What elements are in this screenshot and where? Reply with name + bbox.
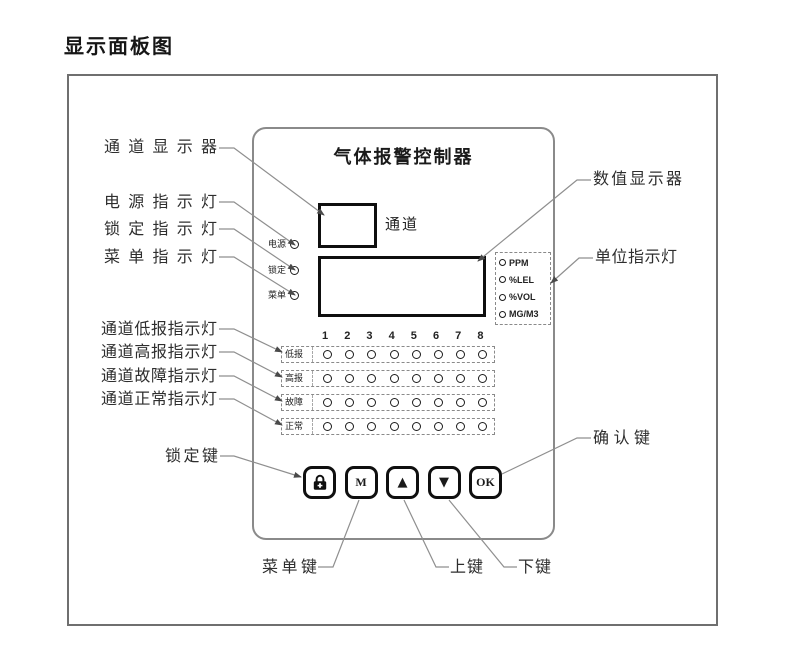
value-display-screen [318,256,486,317]
power-led-row: 电源 [266,239,299,250]
up-key: ▲ [386,466,419,499]
callout-low-alarm-led: 通道低报指示灯 [101,321,217,339]
menu-led-label: 菜单 [266,290,286,301]
channel-led-icon [390,398,399,407]
low-alarm-leds [313,350,487,359]
page-title: 显示面板图 [64,30,174,59]
channel-led-matrix: 低报 高报 故障 正常 [281,346,495,435]
channel-led-icon [323,398,332,407]
channel-number: 5 [403,330,425,342]
power-led-icon [290,240,299,249]
unit-led-label: %VOL [509,292,536,302]
channel-led-icon [412,398,421,407]
fault-leds [313,398,487,407]
channel-display-screen [318,203,377,248]
channel-led-icon [367,422,376,431]
unit-led-row: MG/M3 [499,309,550,319]
high-alarm-leds [313,374,487,383]
callout-menu-led: 菜单指示灯 [104,249,217,267]
channel-led-icon [456,422,465,431]
lock-led-icon [290,266,299,275]
channel-led-icon [367,374,376,383]
callout-value-display: 数值显示器 [593,171,682,189]
channel-led-icon [456,374,465,383]
channel-led-icon [390,350,399,359]
channel-led-icon [478,350,487,359]
channel-led-icon [478,422,487,431]
down-arrow-icon: ▼ [439,475,449,490]
callout-unit-led: 单位指示灯 [595,249,677,267]
fault-row-label: 故障 [282,395,313,410]
callout-fault-led: 通道故障指示灯 [101,368,217,386]
high-alarm-led-row: 高报 [281,370,495,387]
channel-led-icon [478,374,487,383]
channel-led-icon [345,422,354,431]
unit-led-row: %VOL [499,292,550,302]
normal-led-row: 正常 [281,418,495,435]
channel-number: 3 [358,330,380,342]
low-alarm-led-row: 低报 [281,346,495,363]
callout-normal-led: 通道正常指示灯 [101,391,217,409]
channel-number: 8 [469,330,491,342]
callout-ok-key: 确认键 [593,430,650,448]
callout-menu-key: 菜单键 [262,559,317,577]
channel-led-icon [367,350,376,359]
channel-led-icon [434,374,443,383]
low-alarm-row-label: 低报 [282,347,313,362]
unit-led-label: %LEL [509,275,534,285]
channel-display-caption: 通道 [385,213,419,234]
unit-led-label: MG/M3 [509,309,539,319]
power-led-label: 电源 [266,239,286,250]
channel-led-icon [412,422,421,431]
channel-number: 7 [447,330,469,342]
status-led-group: 电源 锁定 菜单 [266,239,299,301]
channel-led-icon [412,350,421,359]
channel-led-icon [412,374,421,383]
channel-number: 6 [425,330,447,342]
callout-down-key: 下键 [518,559,551,577]
normal-row-label: 正常 [282,419,313,434]
key-row: M ▲ ▼ OK [303,466,502,499]
channel-led-icon [345,350,354,359]
controller-panel: 气体报警控制器 通道 电源 锁定 菜单 PPM [252,127,555,540]
channel-led-icon [323,422,332,431]
high-alarm-row-label: 高报 [282,371,313,386]
lock-key [303,466,336,499]
channel-led-icon [434,350,443,359]
unit-led-icon [499,259,506,266]
unit-led-icon [499,294,506,301]
menu-led-icon [290,291,299,300]
unit-led-row: PPM [499,258,550,268]
unit-led-icon [499,276,506,283]
ok-key: OK [469,466,502,499]
channel-led-icon [478,398,487,407]
figure-page: 显示面板图 气体报警控制器 通道 电源 锁定 菜单 [0,0,807,656]
channel-led-icon [390,374,399,383]
channel-led-icon [434,422,443,431]
lock-led-label: 锁定 [266,265,286,276]
channel-number: 2 [336,330,358,342]
callout-power-led: 电源指示灯 [104,194,217,212]
menu-led-row: 菜单 [266,290,299,301]
channel-led-icon [456,398,465,407]
channel-led-icon [434,398,443,407]
up-arrow-icon: ▲ [398,475,408,490]
unit-led-row: %LEL [499,275,550,285]
down-key: ▼ [428,466,461,499]
fault-led-row: 故障 [281,394,495,411]
channel-led-icon [323,350,332,359]
channel-number-row: 12345678 [314,330,492,342]
channel-number: 1 [314,330,336,342]
unit-led-group: PPM %LEL %VOL MG/M3 [495,252,551,325]
channel-led-icon [456,350,465,359]
normal-leds [313,422,487,431]
callout-lock-key: 锁定键 [165,448,218,466]
lock-led-row: 锁定 [266,265,299,276]
callout-up-key: 上键 [450,559,483,577]
unit-led-label: PPM [509,258,529,268]
lock-icon [312,474,328,491]
channel-led-icon [345,374,354,383]
channel-led-icon [345,398,354,407]
channel-led-icon [323,374,332,383]
menu-key: M [345,466,378,499]
unit-led-icon [499,311,506,318]
panel-title: 气体报警控制器 [254,143,553,169]
callout-lock-led: 锁定指示灯 [104,221,217,239]
callout-high-alarm-led: 通道高报指示灯 [101,344,217,362]
channel-led-icon [390,422,399,431]
channel-number: 4 [381,330,403,342]
callout-channel-display: 通道显示器 [104,139,217,157]
channel-led-icon [367,398,376,407]
